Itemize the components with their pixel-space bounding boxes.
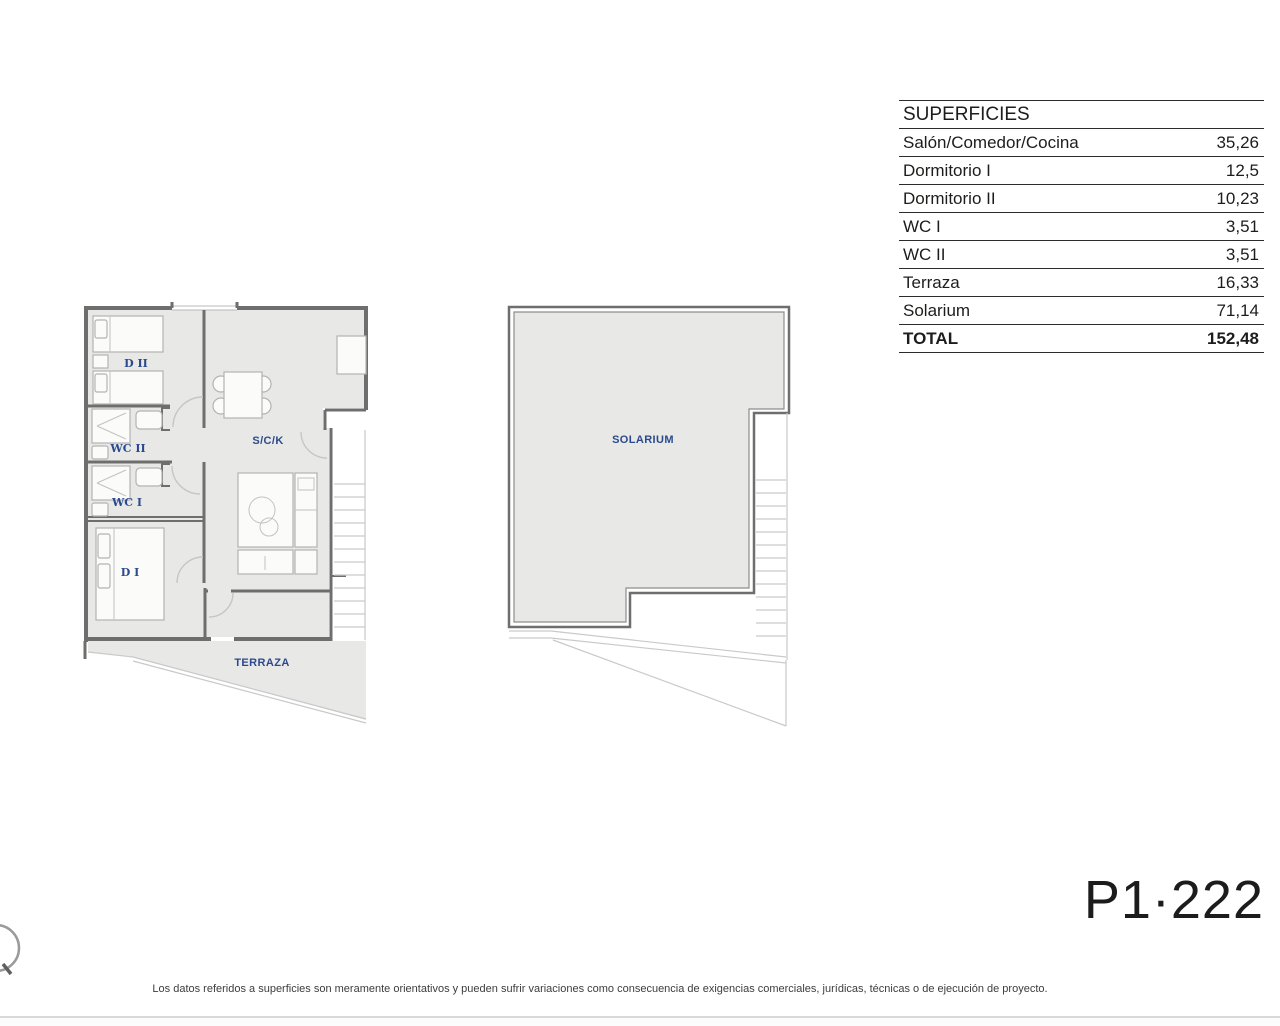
row-value: 12,5 — [1226, 161, 1259, 181]
brand-logo-partial — [0, 925, 19, 974]
table-title: SUPERFICIES — [903, 104, 1030, 126]
table-row: WC II 3,51 — [899, 241, 1264, 269]
row-label: WC II — [903, 245, 946, 265]
row-value: 3,51 — [1226, 245, 1259, 265]
row-value: 10,23 — [1216, 189, 1259, 209]
apartment-floor-plan: D II WC II WC I D I S/C/K TERRAZA — [85, 302, 368, 723]
kitchen-island-symbol — [238, 473, 293, 547]
bottom-divider — [0, 1016, 1280, 1026]
room-label-solarium: SOLARIUM — [612, 434, 674, 446]
nightstand-symbol — [93, 355, 108, 368]
footer-disclaimer: Los datos referidos a superficies son me… — [0, 983, 1200, 995]
row-value: 71,14 — [1216, 301, 1259, 321]
sink-symbol — [136, 468, 162, 486]
room-label-wc2: WC II — [109, 442, 145, 455]
surfaces-table: SUPERFICIES Salón/Comedor/Cocina 35,26 D… — [899, 100, 1264, 353]
row-label: Terraza — [903, 273, 960, 293]
table-row-total: TOTAL 152,48 — [899, 325, 1264, 353]
row-label: Dormitorio II — [903, 189, 996, 209]
toilet-symbol — [92, 503, 108, 516]
roof-edge-lines — [509, 631, 786, 726]
plan-code: P1·222 — [1084, 872, 1264, 929]
staircase-symbol — [756, 413, 787, 660]
table-row: WC I 3,51 — [899, 213, 1264, 241]
row-label: Dormitorio I — [903, 161, 991, 181]
room-label-dormitorio2: D II — [124, 357, 148, 370]
table-row: Dormitorio I 12,5 — [899, 157, 1264, 185]
row-value: 152,48 — [1207, 329, 1259, 349]
room-label-terraza: TERRAZA — [234, 657, 289, 669]
solarium-roof-plan: SOLARIUM — [509, 307, 789, 726]
dining-table-symbol — [224, 372, 262, 418]
row-value: 35,26 — [1216, 133, 1259, 153]
row-label: Solarium — [903, 301, 970, 321]
sink-symbol — [136, 411, 162, 429]
row-label: TOTAL — [903, 329, 958, 349]
room-label-sck: S/C/K — [252, 435, 283, 447]
row-value: 3,51 — [1226, 217, 1259, 237]
solarium-area — [514, 312, 784, 622]
counter-symbol — [337, 336, 366, 374]
table-row: Terraza 16,33 — [899, 269, 1264, 297]
table-row: Dormitorio II 10,23 — [899, 185, 1264, 213]
surfaces-table-header: SUPERFICIES — [899, 101, 1264, 129]
table-row: Solarium 71,14 — [899, 297, 1264, 325]
row-label: Salón/Comedor/Cocina — [903, 133, 1079, 153]
table-row: Salón/Comedor/Cocina 35,26 — [899, 129, 1264, 157]
toilet-symbol — [92, 446, 108, 459]
row-label: WC I — [903, 217, 941, 237]
logo-circle-icon — [0, 925, 19, 971]
row-value: 16,33 — [1216, 273, 1259, 293]
staircase-symbol — [334, 430, 365, 640]
room-label-dormitorio1: D I — [121, 566, 140, 579]
room-label-wc1: WC I — [111, 496, 142, 509]
